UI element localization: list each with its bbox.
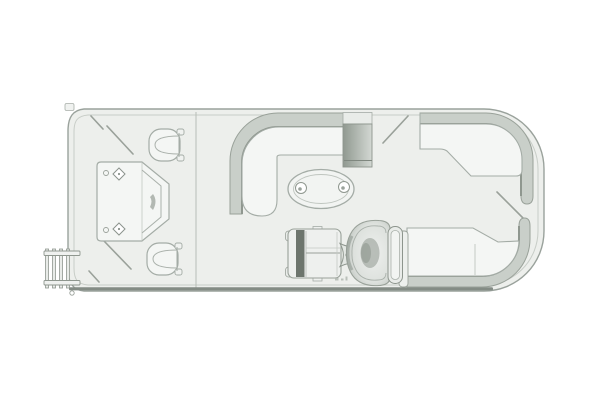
captains-chair-backrest-inner: [391, 231, 400, 280]
chair-shell: [149, 129, 180, 161]
chair-armrest: [177, 129, 184, 135]
diamond-fitting-dot: [118, 228, 120, 230]
faint-mark-dash: [341, 279, 344, 281]
swivel-chair-bottom: [147, 243, 182, 275]
captains-chair-cushion-shade: [361, 243, 371, 263]
chair-armrest: [175, 269, 182, 275]
helm-console: [286, 227, 342, 282]
diamond-fitting-dot: [118, 173, 120, 175]
cupholder-dot: [341, 186, 345, 190]
cocktail-table: [288, 170, 354, 209]
faint-mark-dash: [335, 278, 339, 281]
ladder-hinge: [70, 291, 74, 295]
captains-chair: [346, 220, 402, 285]
ladder-rail-bottom: [44, 281, 80, 286]
faint-mark-dash: [346, 277, 348, 281]
floorplan-canvas: [0, 0, 600, 406]
bow-cleat: [65, 104, 74, 111]
console-windscreen: [296, 230, 305, 277]
deck-edge-shadow: [69, 287, 493, 290]
pontoon-floorplan-image: [0, 0, 600, 406]
shaded-seat-block: [343, 113, 372, 168]
chair-armrest: [177, 155, 184, 161]
chair-shell: [147, 243, 178, 275]
swivel-chair-top: [149, 129, 184, 161]
ladder-rail-top: [44, 251, 80, 256]
chair-armrest: [175, 243, 182, 249]
cupholder-dot: [298, 187, 302, 191]
seat-block-top-cap: [343, 113, 372, 125]
